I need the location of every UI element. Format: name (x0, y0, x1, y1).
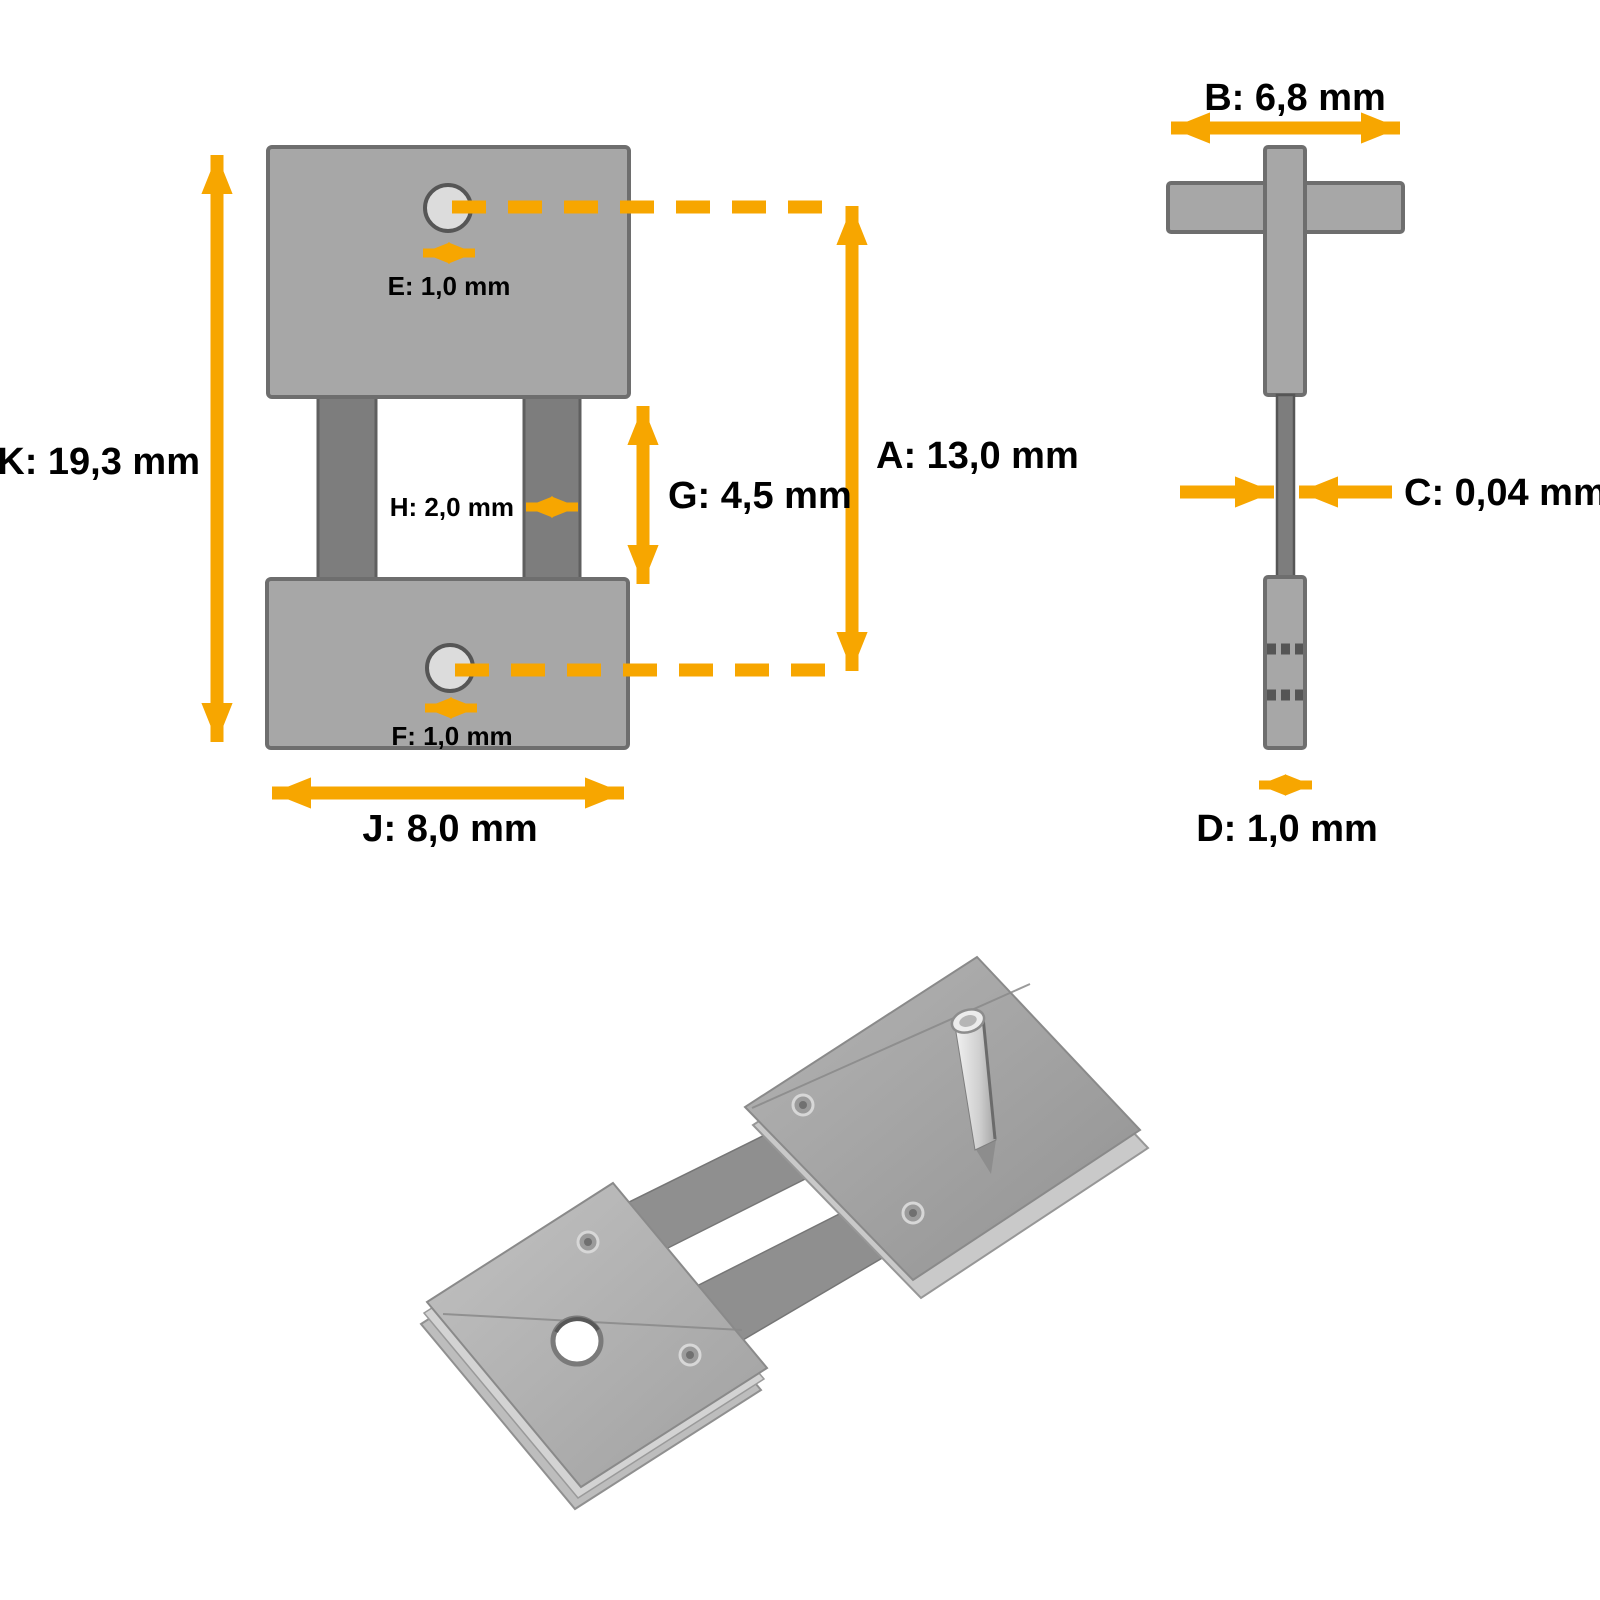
photo-rivet-dot-center (686, 1351, 694, 1359)
dim-label-K: K: 19,3 mm (0, 441, 200, 483)
photo-rivet-dot-center (584, 1238, 592, 1246)
product-photo (421, 957, 1148, 1509)
front-view-drawing: K: 19,3 mm E: 1,0 mm H: 2,0 mm G: 4,5 mm… (0, 147, 1079, 850)
dim-label-D: D: 1,0 mm (1196, 808, 1378, 850)
dim-label-E: E: 1,0 mm (388, 271, 511, 301)
photo-rivet-dot-center (909, 1209, 917, 1217)
dim-label-B: B: 6,8 mm (1204, 77, 1386, 119)
dim-label-A: A: 13,0 mm (876, 435, 1079, 477)
side-thin-spring-blade (1277, 395, 1294, 579)
dim-label-J: J: 8,0 mm (362, 808, 537, 850)
dim-label-G: G: 4,5 mm (668, 475, 852, 517)
front-left-spring-leaf (318, 392, 376, 584)
side-bottom-block (1265, 577, 1305, 748)
side-top-block (1265, 147, 1305, 395)
photo-rivet-dot-center (799, 1101, 807, 1109)
drawing-canvas: K: 19,3 mm E: 1,0 mm H: 2,0 mm G: 4,5 mm… (0, 0, 1600, 1600)
dim-label-F: F: 1,0 mm (391, 721, 512, 751)
dim-label-C: C: 0,04 mm (1404, 472, 1600, 514)
front-right-spring-leaf (524, 392, 580, 584)
dim-label-H: H: 2,0 mm (390, 492, 514, 522)
side-view-drawing: B: 6,8 mm C: 0,04 mm D: 1,0 mm (1168, 77, 1600, 850)
diagram-page: K: 19,3 mm E: 1,0 mm H: 2,0 mm G: 4,5 mm… (0, 0, 1600, 1600)
